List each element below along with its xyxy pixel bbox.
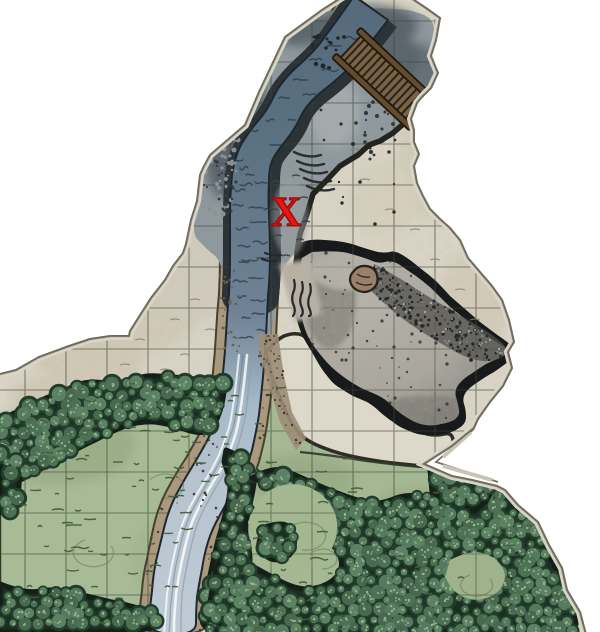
svg-text:X: X xyxy=(271,190,301,236)
